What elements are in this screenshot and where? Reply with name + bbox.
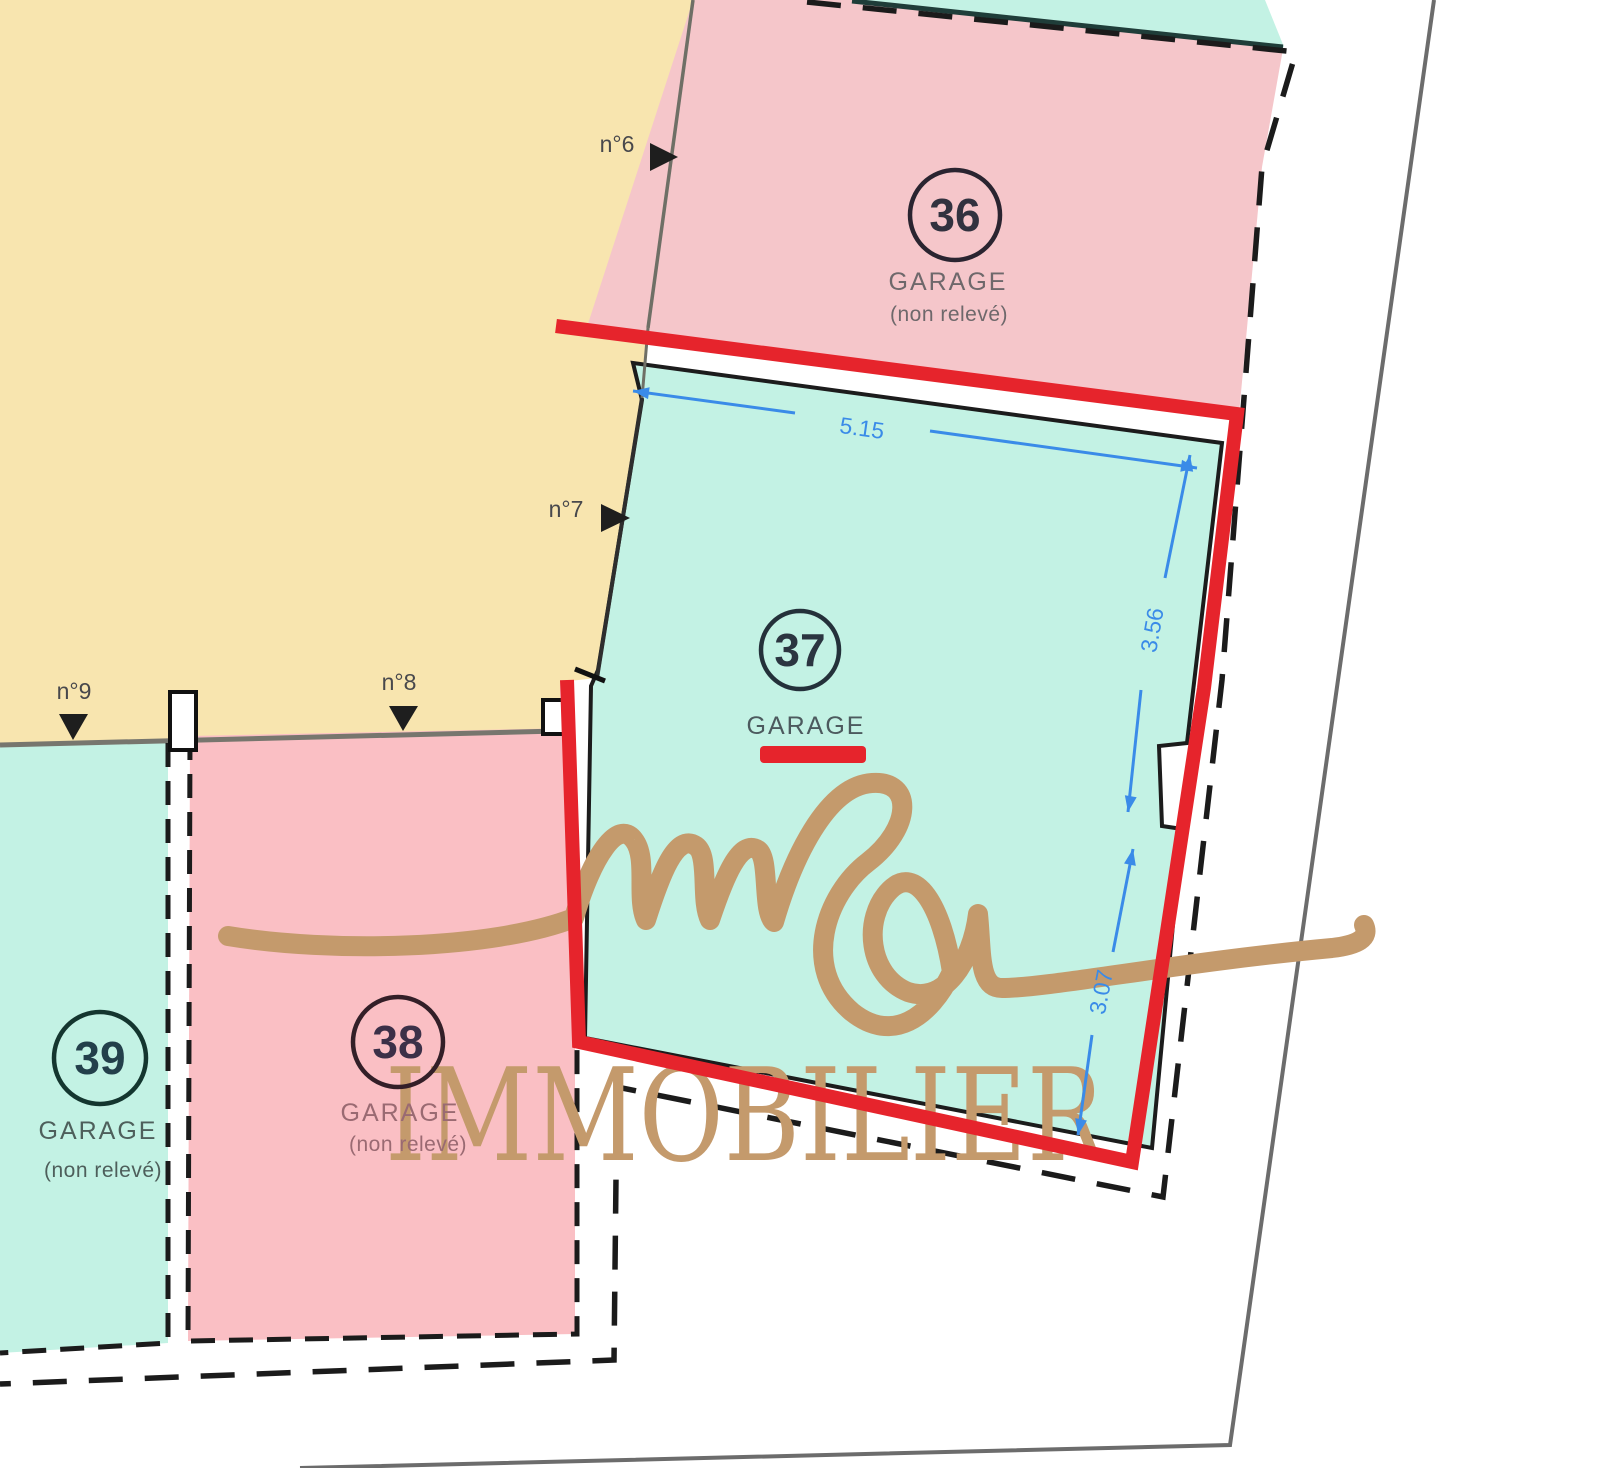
garage-37-red-underline [760, 746, 866, 763]
garage-38-number: 38 [372, 1016, 423, 1068]
garage-37-number: 37 [774, 624, 825, 676]
garage-36-note: (non relevé) [890, 303, 1008, 326]
garage-38-label: GARAGE [341, 1099, 460, 1127]
courtyard-region [0, 0, 693, 745]
floor-plan: IMMOBILIER 5.15 3.56 3.07 n°6 n°7 n°8 n°… [0, 0, 1600, 1468]
entry-n9-label: n°9 [57, 678, 92, 704]
garage-37-label: GARAGE [747, 712, 866, 740]
entry-n8-label: n°8 [382, 669, 417, 695]
watermark-title: IMMOBILIER [385, 1042, 1108, 1191]
garage-39-label: GARAGE [39, 1117, 158, 1145]
garage-39-number: 39 [74, 1032, 125, 1084]
entry-n6-label: n°6 [600, 131, 635, 157]
garage-36-number: 36 [929, 189, 980, 241]
garage-36-label: GARAGE [889, 268, 1008, 296]
garage-39-note: (non relevé) [44, 1159, 162, 1182]
garage-38-note: (non relevé) [349, 1133, 467, 1156]
entry-n7-label: n°7 [549, 496, 584, 522]
wall-pillar [170, 692, 196, 750]
